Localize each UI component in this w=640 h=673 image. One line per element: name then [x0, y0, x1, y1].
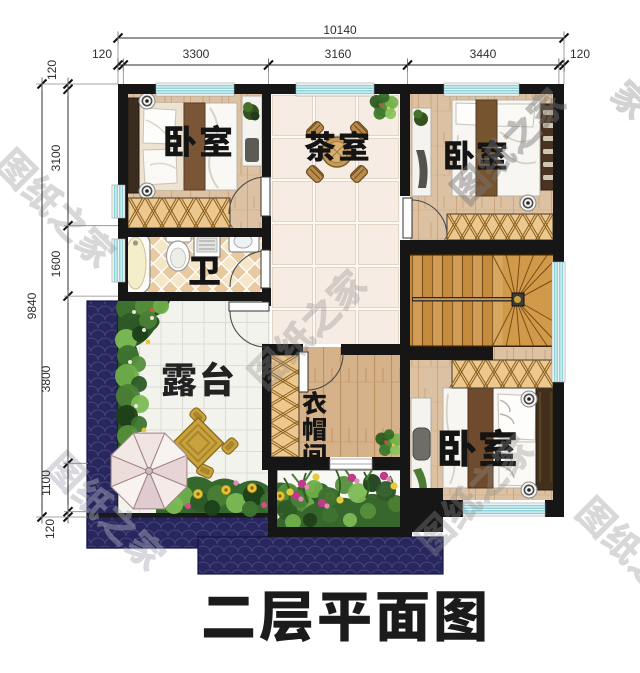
svg-text:1100: 1100: [39, 470, 53, 496]
svg-text:3300: 3300: [183, 47, 210, 61]
svg-text:3160: 3160: [325, 47, 352, 61]
svg-text:120: 120: [570, 47, 590, 61]
svg-text:120: 120: [45, 60, 59, 80]
svg-text:3100: 3100: [49, 144, 63, 171]
svg-text:10140: 10140: [323, 23, 357, 37]
svg-text:120: 120: [43, 519, 57, 539]
svg-text:120: 120: [92, 47, 112, 61]
svg-text:1600: 1600: [49, 250, 63, 277]
svg-text:3440: 3440: [470, 47, 497, 61]
svg-text:9840: 9840: [25, 292, 39, 319]
svg-text:3800: 3800: [39, 365, 53, 392]
